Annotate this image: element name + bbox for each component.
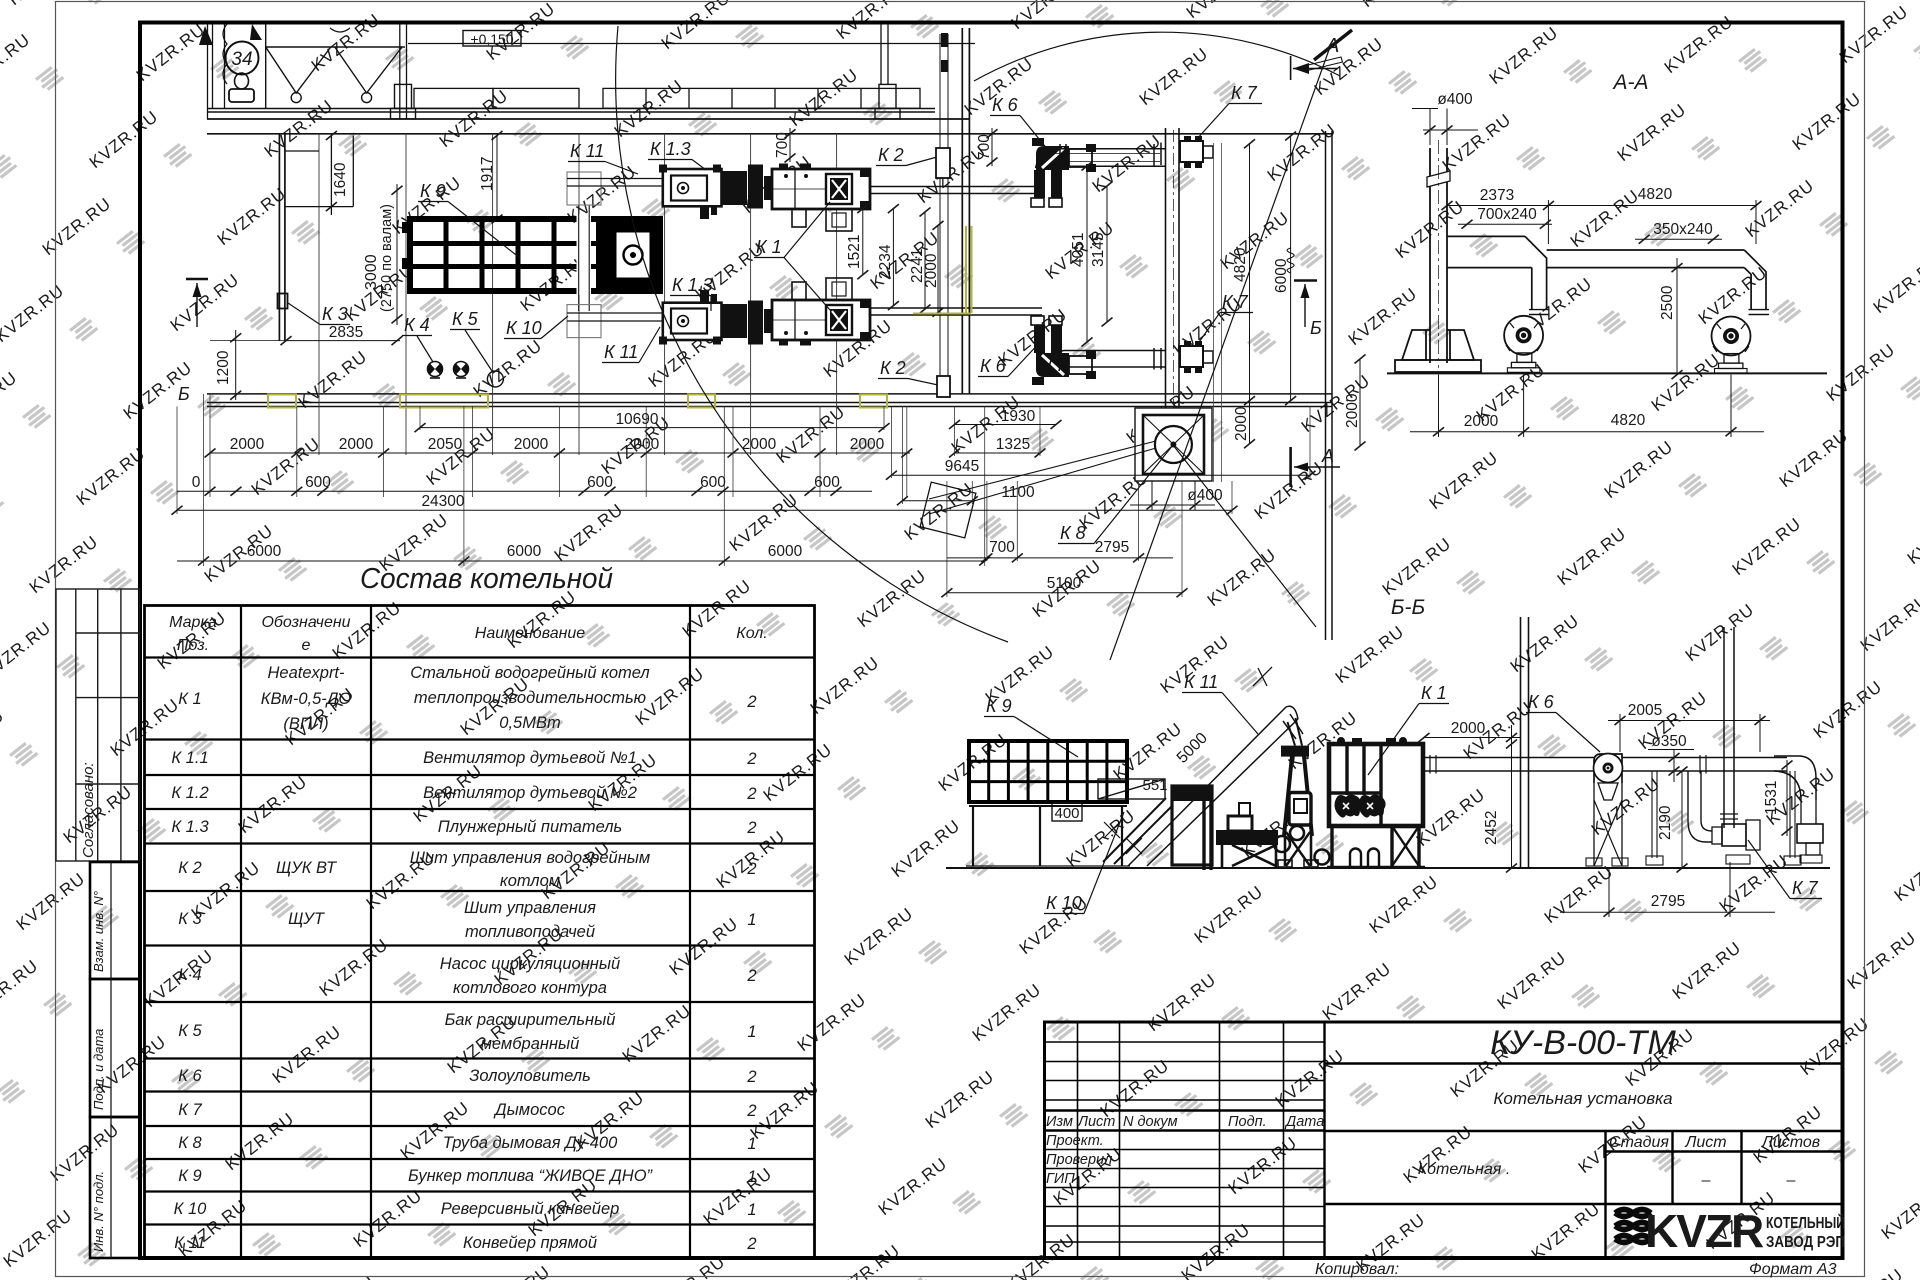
svg-text:1531: 1531 bbox=[1763, 781, 1780, 815]
svg-text:К 11: К 11 bbox=[604, 342, 638, 362]
svg-text:К 11: К 11 bbox=[1184, 672, 1218, 692]
svg-text:топливоподачей: топливоподачей bbox=[465, 923, 595, 941]
svg-text:К 1.2: К 1.2 bbox=[171, 784, 208, 802]
svg-text:К 5: К 5 bbox=[452, 309, 479, 329]
svg-text:Реверсивный конвейер: Реверсивный конвейер bbox=[441, 1200, 620, 1218]
svg-text:2452: 2452 bbox=[1483, 811, 1500, 845]
svg-text:Плунжерный питатель: Плунжерный питатель bbox=[438, 818, 622, 836]
svg-text:1521: 1521 bbox=[846, 235, 863, 269]
svg-text:2835: 2835 bbox=[329, 324, 363, 341]
svg-text:9645: 9645 bbox=[945, 458, 979, 475]
svg-text:Конвейер прямой: Конвейер прямой bbox=[463, 1234, 597, 1252]
svg-text:Копировал:: Копировал: bbox=[1315, 1261, 1399, 1278]
svg-text:2000: 2000 bbox=[1451, 720, 1486, 737]
svg-text:Бак расширительный: Бак расширительный bbox=[445, 1011, 616, 1029]
svg-text:Дымосос: Дымосос bbox=[493, 1101, 566, 1119]
svg-text:2234: 2234 bbox=[877, 244, 894, 279]
svg-text:КОТЕЛЬНЫЙ: КОТЕЛЬНЫЙ bbox=[1766, 1213, 1845, 1232]
svg-text:К 4: К 4 bbox=[178, 966, 202, 984]
svg-text:К 5: К 5 bbox=[178, 1022, 202, 1040]
svg-text:ЗАВОД РЭП: ЗАВОД РЭП bbox=[1766, 1234, 1845, 1251]
svg-text:Стадия: Стадия bbox=[1609, 1134, 1669, 1151]
svg-text:(ВПЛ): (ВПЛ) bbox=[283, 715, 328, 733]
svg-text:KVZR: KVZR bbox=[1645, 1205, 1764, 1257]
svg-text:Б: Б bbox=[1310, 318, 1322, 338]
svg-text:ø350: ø350 bbox=[1651, 733, 1687, 750]
svg-text:6000: 6000 bbox=[507, 543, 542, 560]
svg-text:ЩУТ: ЩУТ bbox=[288, 910, 326, 928]
svg-text:–: – bbox=[1786, 1172, 1796, 1189]
svg-text:5100: 5100 bbox=[1047, 575, 1082, 592]
svg-text:теплопроизводительностью: теплопроизводительностью bbox=[414, 689, 646, 707]
svg-text:К 11: К 11 bbox=[570, 141, 604, 161]
svg-text:Шит управления водогрейным: Шит управления водогрейным bbox=[410, 849, 651, 867]
svg-text:К 1.3: К 1.3 bbox=[650, 139, 691, 159]
svg-text:1: 1 bbox=[747, 1023, 756, 1041]
svg-text:К 6: К 6 bbox=[178, 1067, 202, 1085]
svg-text:1100: 1100 bbox=[1001, 484, 1035, 501]
svg-text:4820: 4820 bbox=[1611, 412, 1646, 429]
svg-text:1: 1 bbox=[747, 1201, 756, 1219]
svg-text:Вентилятор дутьевой №2: Вентилятор дутьевой №2 bbox=[423, 784, 637, 802]
svg-text:1: 1 bbox=[747, 1135, 756, 1153]
svg-text:2: 2 bbox=[746, 860, 756, 878]
svg-text:К 2: К 2 bbox=[880, 358, 906, 378]
svg-text:К 1.3: К 1.3 bbox=[171, 818, 209, 836]
svg-text:Изм: Изм bbox=[1046, 1114, 1073, 1130]
svg-text:Бункер топлива “ЖИВОЕ ДНО”: Бункер топлива “ЖИВОЕ ДНО” bbox=[408, 1167, 654, 1185]
svg-text:N докум: N докум bbox=[1123, 1114, 1178, 1130]
svg-text:350х240: 350х240 bbox=[1653, 221, 1713, 238]
svg-text:Вентилятор дутьевой №1: Вентилятор дутьевой №1 bbox=[423, 749, 637, 767]
svg-text:551: 551 bbox=[1142, 777, 1167, 794]
svg-text:К 9: К 9 bbox=[986, 696, 1012, 716]
svg-text:К 10: К 10 bbox=[506, 318, 542, 338]
svg-text:К 7: К 7 bbox=[178, 1101, 202, 1119]
svg-text:К 7: К 7 bbox=[1792, 878, 1819, 898]
svg-text:+0,150: +0,150 bbox=[470, 31, 513, 47]
svg-text:4820: 4820 bbox=[1232, 247, 1249, 282]
svg-text:2000: 2000 bbox=[850, 436, 885, 453]
svg-text:ГИП: ГИП bbox=[1046, 1171, 1075, 1187]
svg-text:2000: 2000 bbox=[1464, 413, 1499, 430]
svg-text:700: 700 bbox=[976, 134, 993, 160]
svg-text:34: 34 bbox=[231, 49, 252, 70]
svg-text:Насос циркуляционный: Насос циркуляционный bbox=[440, 955, 620, 973]
svg-text:1: 1 bbox=[747, 1168, 756, 1186]
svg-text:600: 600 bbox=[814, 474, 840, 491]
svg-text:Обозначени: Обозначени bbox=[261, 614, 350, 631]
svg-text:К 8: К 8 bbox=[178, 1134, 202, 1152]
svg-text:2: 2 bbox=[746, 967, 756, 985]
svg-text:Котельная установка: Котельная установка bbox=[1493, 1089, 1672, 1108]
svg-text:2000: 2000 bbox=[742, 436, 777, 453]
svg-text:К 3: К 3 bbox=[322, 304, 348, 324]
svg-text:Согласовано:: Согласовано: bbox=[80, 762, 97, 858]
svg-text:3145: 3145 bbox=[1090, 233, 1107, 267]
svg-text:–: – bbox=[1701, 1172, 1711, 1189]
svg-text:2005: 2005 bbox=[1628, 702, 1662, 719]
svg-text:Золоуловитель: Золоуловитель bbox=[469, 1067, 591, 1085]
svg-text:К 9: К 9 bbox=[178, 1167, 202, 1185]
svg-text:400: 400 bbox=[1054, 805, 1079, 822]
svg-text:2000: 2000 bbox=[625, 436, 660, 453]
svg-text:К 4: К 4 bbox=[404, 315, 430, 335]
svg-text:е: е bbox=[302, 637, 311, 654]
svg-text:2: 2 bbox=[746, 785, 756, 803]
svg-text:К 11: К 11 bbox=[174, 1234, 205, 1252]
svg-text:Кол.: Кол. bbox=[736, 625, 767, 642]
svg-text:ø400: ø400 bbox=[1187, 487, 1223, 504]
svg-text:Труба дымовая Ду 400: Труба дымовая Ду 400 bbox=[443, 1134, 618, 1152]
svg-text:К 1: К 1 bbox=[1421, 683, 1447, 703]
svg-text:2: 2 bbox=[746, 750, 756, 768]
svg-text:2000: 2000 bbox=[1344, 393, 1361, 428]
svg-text:3000: 3000 bbox=[363, 254, 380, 290]
svg-text:Стальной водогрейный котел: Стальной водогрейный котел bbox=[410, 664, 649, 682]
svg-text:К 1.3: К 1.3 bbox=[672, 275, 713, 295]
svg-text:КУ-В-00-ТМ: КУ-В-00-ТМ bbox=[1490, 1024, 1676, 1062]
svg-text:К 6: К 6 bbox=[992, 95, 1019, 115]
svg-text:Б: Б bbox=[178, 384, 190, 404]
svg-text:0,5МВт: 0,5МВт bbox=[499, 714, 560, 732]
svg-text:Проверил: Проверил bbox=[1046, 1152, 1112, 1168]
svg-text:К 7: К 7 bbox=[1231, 83, 1258, 103]
svg-text:К 8: К 8 bbox=[1060, 523, 1086, 543]
svg-text:Дата: Дата bbox=[1284, 1114, 1324, 1130]
svg-text:0: 0 bbox=[192, 474, 201, 491]
svg-text:Инв. N° подл.: Инв. N° подл. bbox=[91, 1171, 106, 1252]
svg-text:К 10: К 10 bbox=[1046, 893, 1082, 913]
svg-text:ЩУК ВТ: ЩУК ВТ bbox=[276, 859, 338, 877]
svg-text:2000: 2000 bbox=[514, 436, 549, 453]
svg-text:К 9: К 9 bbox=[420, 181, 446, 201]
svg-text:Лист: Лист bbox=[1684, 1134, 1726, 1151]
svg-text:2050: 2050 bbox=[428, 436, 463, 453]
svg-text:К 3: К 3 bbox=[178, 910, 202, 928]
svg-text:К 1: К 1 bbox=[756, 237, 782, 257]
svg-text:К 2: К 2 bbox=[878, 145, 904, 165]
svg-text:Поз.: Поз. bbox=[177, 637, 209, 654]
svg-text:(2750 по валам): (2750 по валам) bbox=[379, 204, 395, 312]
svg-text:2: 2 bbox=[746, 1068, 756, 1086]
svg-text:К 10: К 10 bbox=[174, 1200, 207, 1218]
svg-text:2795: 2795 bbox=[1651, 893, 1685, 910]
svg-text:котлом: котлом bbox=[500, 872, 560, 890]
svg-text:2500: 2500 bbox=[1659, 285, 1676, 320]
svg-text:1930: 1930 bbox=[1001, 408, 1036, 425]
svg-text:1200: 1200 bbox=[215, 350, 232, 385]
svg-text:600: 600 bbox=[587, 474, 613, 491]
svg-text:2: 2 bbox=[746, 819, 756, 837]
svg-text:700: 700 bbox=[989, 539, 1015, 556]
svg-text:К 6: К 6 bbox=[980, 356, 1007, 376]
svg-text:2: 2 bbox=[746, 1102, 756, 1120]
svg-text:2000: 2000 bbox=[1233, 406, 1250, 441]
svg-text:К 1.1: К 1.1 bbox=[171, 749, 208, 767]
svg-text:1325: 1325 bbox=[996, 436, 1030, 453]
svg-text:мембранный: мембранный bbox=[481, 1035, 580, 1053]
svg-text:Подп. и дата: Подп. и дата bbox=[91, 1029, 106, 1110]
svg-text:К 7: К 7 bbox=[1222, 292, 1249, 312]
svg-text:К 6: К 6 bbox=[1528, 692, 1555, 712]
svg-text:2795: 2795 bbox=[1095, 539, 1129, 556]
svg-text:4820: 4820 bbox=[1638, 186, 1673, 203]
svg-text:2000: 2000 bbox=[339, 436, 374, 453]
svg-text:24300: 24300 bbox=[421, 493, 464, 510]
svg-text:А-А: А-А bbox=[1611, 71, 1648, 94]
svg-text:4051: 4051 bbox=[1070, 233, 1087, 267]
svg-text:Состав котельной: Состав котельной bbox=[360, 563, 613, 595]
svg-text:2190: 2190 bbox=[1657, 805, 1674, 840]
svg-text:К 1: К 1 bbox=[178, 690, 202, 708]
svg-text:Наименование: Наименование bbox=[475, 625, 586, 642]
svg-text:6000: 6000 bbox=[247, 543, 282, 560]
svg-text:6000: 6000 bbox=[1273, 258, 1290, 293]
svg-text:700: 700 bbox=[774, 132, 791, 158]
svg-text:10690: 10690 bbox=[615, 411, 658, 428]
svg-text:2000: 2000 bbox=[923, 253, 940, 288]
svg-text:2: 2 bbox=[746, 693, 756, 711]
svg-text:Проект.: Проект. bbox=[1046, 1133, 1104, 1149]
svg-text:1917: 1917 bbox=[479, 157, 496, 191]
svg-text:600: 600 bbox=[700, 474, 726, 491]
svg-text:Формат А3: Формат А3 bbox=[1749, 1261, 1837, 1278]
svg-text:КВм-0,5-ДО: КВм-0,5-ДО bbox=[261, 690, 352, 708]
svg-text:600: 600 bbox=[305, 474, 331, 491]
svg-text:1: 1 bbox=[747, 911, 756, 929]
svg-text:Подп.: Подп. bbox=[1228, 1114, 1267, 1130]
svg-text:А: А bbox=[1321, 446, 1334, 466]
svg-text:Листов: Листов bbox=[1761, 1134, 1820, 1151]
svg-text:Котельная .: Котельная . bbox=[1418, 1161, 1511, 1178]
svg-text:2: 2 bbox=[746, 1235, 756, 1253]
svg-text:Марка: Марка bbox=[169, 614, 217, 631]
svg-text:Лист: Лист bbox=[1077, 1114, 1115, 1130]
svg-text:6000: 6000 bbox=[768, 543, 803, 560]
svg-text:1640: 1640 bbox=[332, 162, 349, 197]
svg-text:ø400: ø400 bbox=[1437, 91, 1473, 108]
svg-text:котлового контура: котлового контура bbox=[453, 979, 607, 997]
svg-text:2000: 2000 bbox=[230, 436, 265, 453]
svg-text:Heatexprt-: Heatexprt- bbox=[267, 664, 345, 682]
svg-text:Шит управления: Шит управления bbox=[464, 899, 596, 917]
svg-text:Б-Б: Б-Б bbox=[1391, 596, 1425, 619]
svg-text:700х240: 700х240 bbox=[1477, 206, 1537, 223]
svg-text:Взам. инв. N°: Взам. инв. N° bbox=[91, 891, 106, 972]
svg-text:К 2: К 2 bbox=[178, 859, 202, 877]
svg-text:2373: 2373 bbox=[1480, 187, 1514, 204]
